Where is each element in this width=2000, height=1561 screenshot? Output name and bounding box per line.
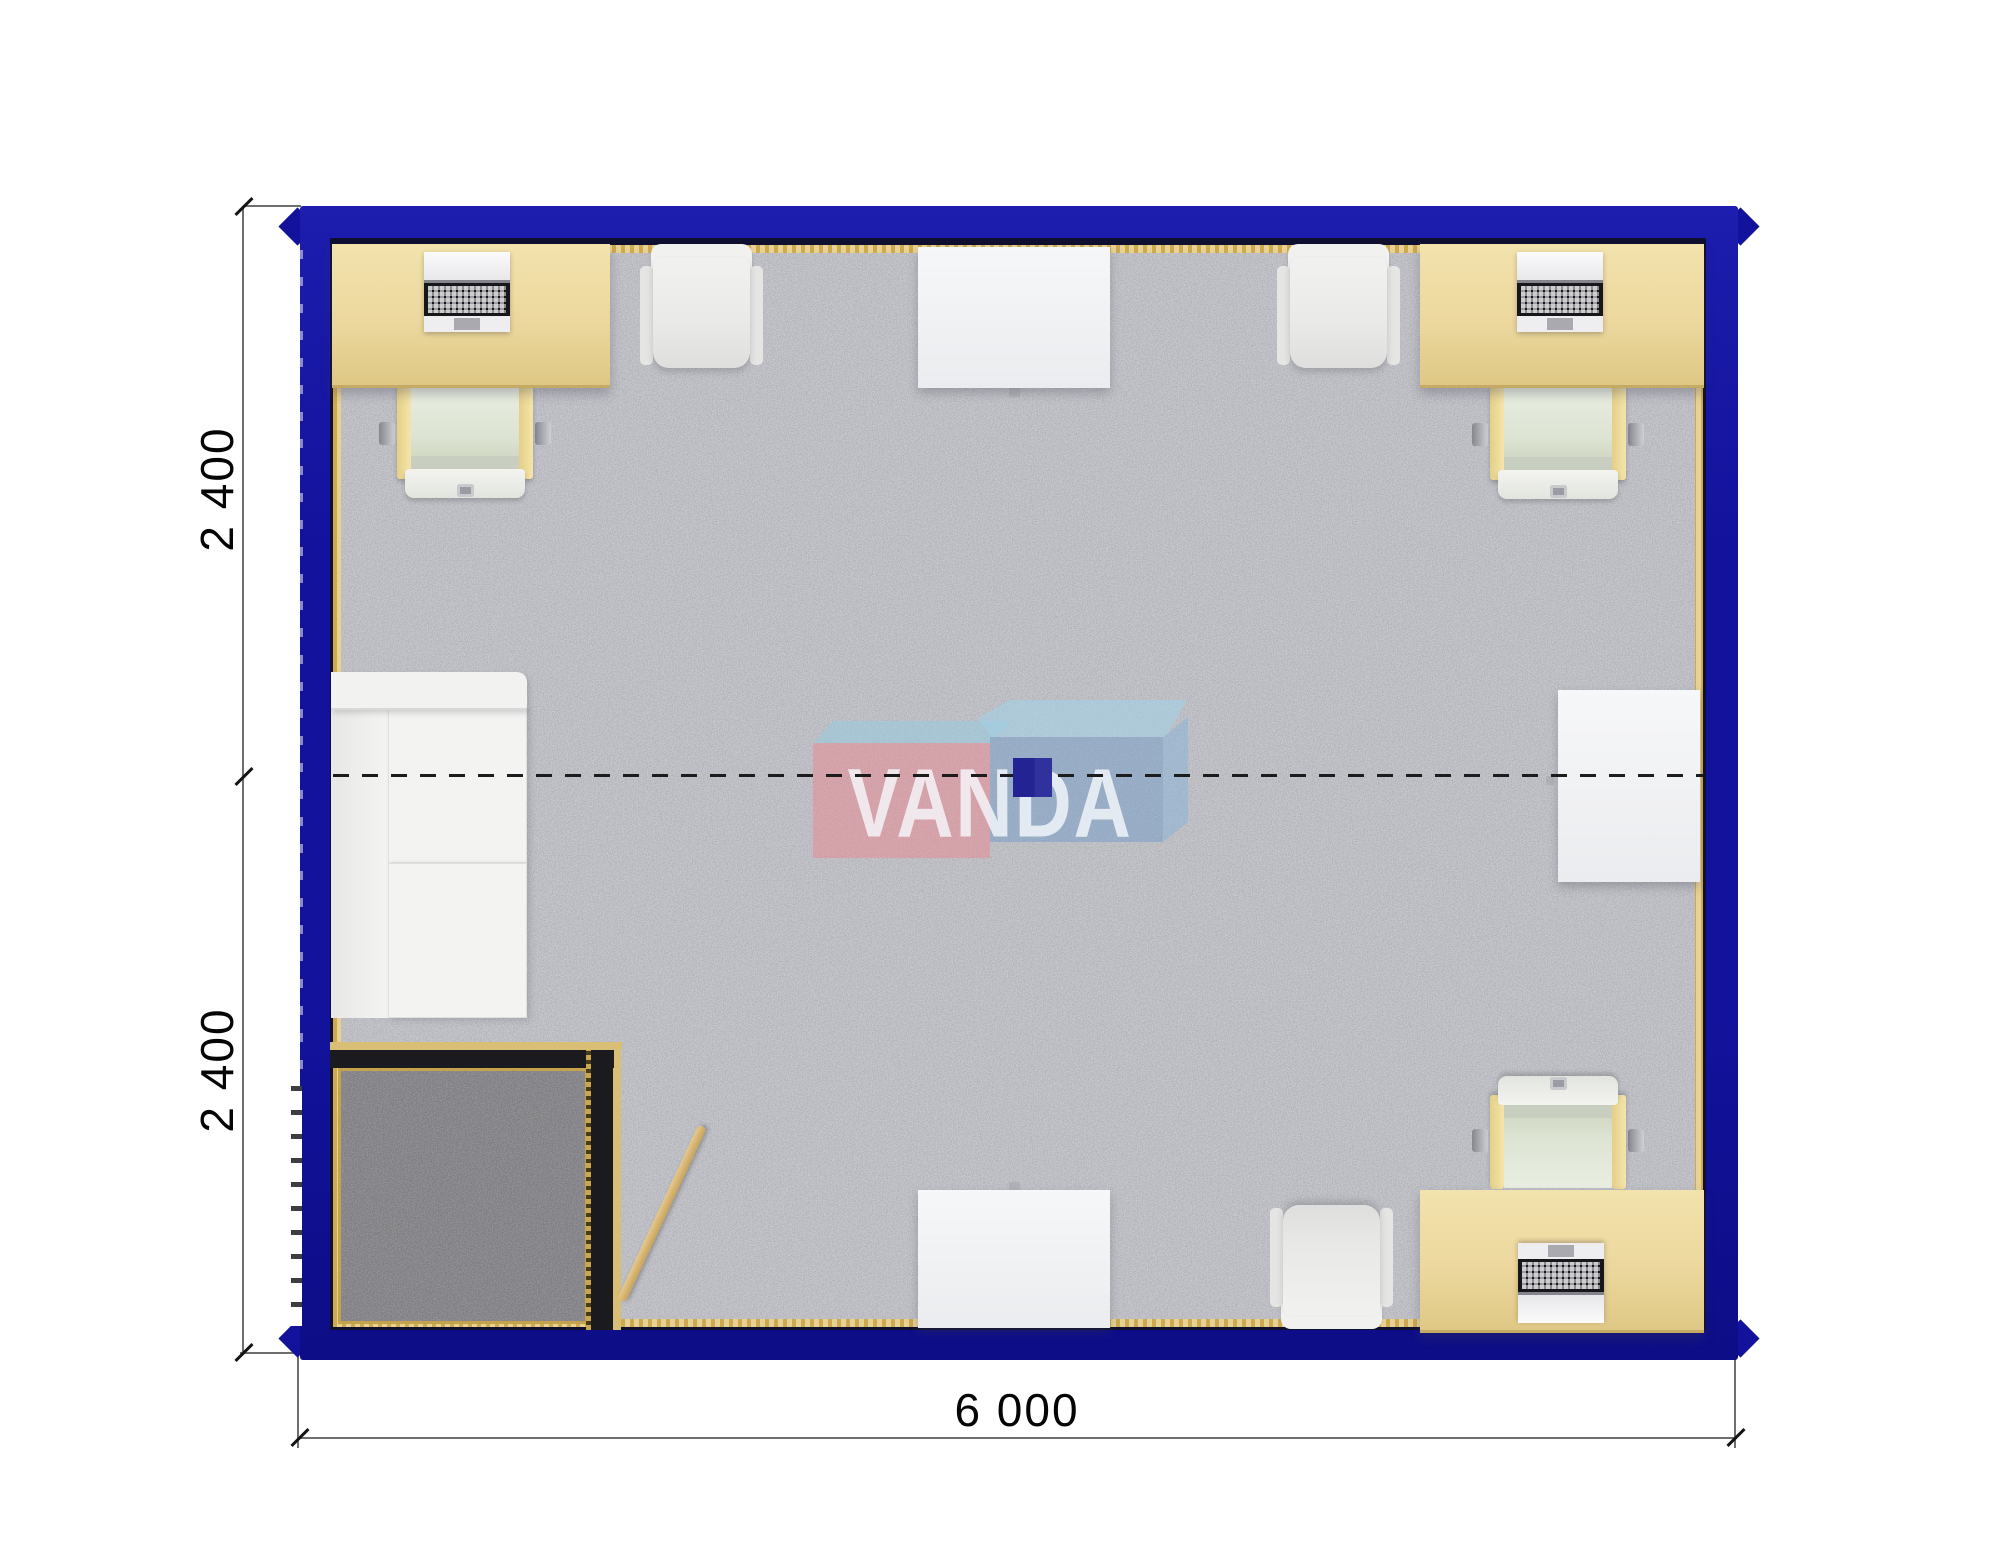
laptop-lid (1518, 1292, 1604, 1323)
watermark-blue-box-top-face (978, 700, 1187, 737)
armchair-bottom (1270, 1205, 1393, 1329)
container-wall-frame: VANDA (300, 206, 1738, 1360)
armchair-armrest (750, 266, 763, 365)
watermark-blue-box-side-face (1163, 717, 1188, 842)
dim-tick (234, 767, 253, 786)
vestibule-wall-right-trim (613, 1050, 621, 1330)
chair-armrest (379, 422, 395, 445)
armchair-top-right (1277, 244, 1400, 368)
armchair-seat (1290, 258, 1387, 368)
chair-armrest (1628, 1129, 1644, 1152)
chair-caster (1550, 485, 1567, 498)
laptop-touchpad (1548, 1245, 1574, 1257)
office-chair-top-left (379, 384, 551, 498)
chair-side-rail (519, 385, 533, 479)
armchair-armrest (1277, 266, 1290, 365)
chair-armrest (535, 422, 551, 445)
laptop-keyboard (1518, 1259, 1604, 1292)
chair-side-rail (1612, 386, 1626, 480)
laptop-palmrest (1518, 1243, 1604, 1259)
extension-line-bottom-left-vertical (297, 1356, 299, 1448)
laptop-palmrest (424, 316, 510, 332)
dim-label-width: 6 000 (954, 1383, 1079, 1437)
vestibule-carpet (338, 1068, 588, 1324)
left-wall-siding-marks (297, 250, 303, 1080)
armchair-seat (653, 258, 750, 368)
laptop-touchpad (454, 318, 480, 330)
chair-seat-front (411, 456, 519, 469)
chair-seat-front (1504, 1105, 1612, 1118)
table-right-middle (1558, 690, 1700, 882)
table-bottom-center (918, 1190, 1110, 1328)
laptop-top-right (1517, 252, 1603, 332)
chair-seat-front (1504, 457, 1612, 470)
armchair-top-left (640, 244, 763, 368)
vestibule-wall-top (330, 1050, 614, 1068)
laptop-lid (1517, 252, 1603, 283)
sofa-seat-cushion (388, 708, 527, 863)
chair-armrest (1472, 1129, 1488, 1152)
chair-armrest (1628, 423, 1644, 446)
office-chair-top-right (1472, 385, 1644, 499)
chair-seat (411, 386, 519, 456)
left-wall-entrance-door-marking (291, 1086, 302, 1326)
chair-caster (457, 484, 474, 497)
chair-caster (1550, 1077, 1567, 1090)
sofa (331, 672, 527, 1018)
office-room: VANDA (330, 238, 1706, 1330)
watermark-text: VANDA (847, 748, 1132, 860)
chair-seat (1504, 387, 1612, 457)
chair-side-rail (397, 385, 411, 479)
armchair-armrest (1387, 266, 1400, 365)
dim-label-depth-top: 2 400 (190, 426, 244, 551)
vestibule-carpet-texture (341, 1071, 585, 1321)
chair-side-rail (1490, 386, 1504, 480)
laptop-top-left (424, 252, 510, 332)
chair-side-rail (1612, 1095, 1626, 1189)
extension-line-top-left (243, 205, 301, 207)
office-chair-bottom-right (1472, 1076, 1644, 1190)
vestibule-wall-right-gold-edge (586, 1050, 591, 1330)
dimension-line-bottom (299, 1437, 1737, 1439)
laptop-touchpad (1547, 318, 1573, 330)
table-leg (1546, 776, 1554, 785)
laptop-keyboard (424, 283, 510, 316)
armchair-armrest (1380, 1208, 1393, 1307)
dim-label-depth-bottom: 2 400 (190, 1007, 244, 1132)
watermark-pink-box-top-face (813, 721, 1012, 743)
chair-seat (1504, 1118, 1612, 1188)
chair-armrest (1472, 423, 1488, 446)
sofa-armrest (331, 672, 527, 710)
vestibule-wall-right (591, 1050, 613, 1330)
laptop-bottom-right (1518, 1243, 1604, 1323)
armchair-seat (1283, 1205, 1380, 1315)
armchair-armrest (1270, 1208, 1283, 1307)
chair-side-rail (1490, 1095, 1504, 1189)
laptop-lid (424, 252, 510, 283)
armchair-armrest (640, 266, 653, 365)
watermark-navy-square (1013, 758, 1052, 797)
floor-plan-canvas: 2 400 2 400 6 000 (0, 0, 2000, 1561)
laptop-keyboard (1517, 283, 1603, 316)
vestibule-wall-top-trim (330, 1042, 622, 1050)
table-leg (1009, 388, 1020, 397)
sofa-backrest (331, 708, 388, 1018)
sofa-seat-cushion (388, 863, 527, 1018)
table-top-center (918, 247, 1110, 388)
laptop-palmrest (1517, 316, 1603, 332)
